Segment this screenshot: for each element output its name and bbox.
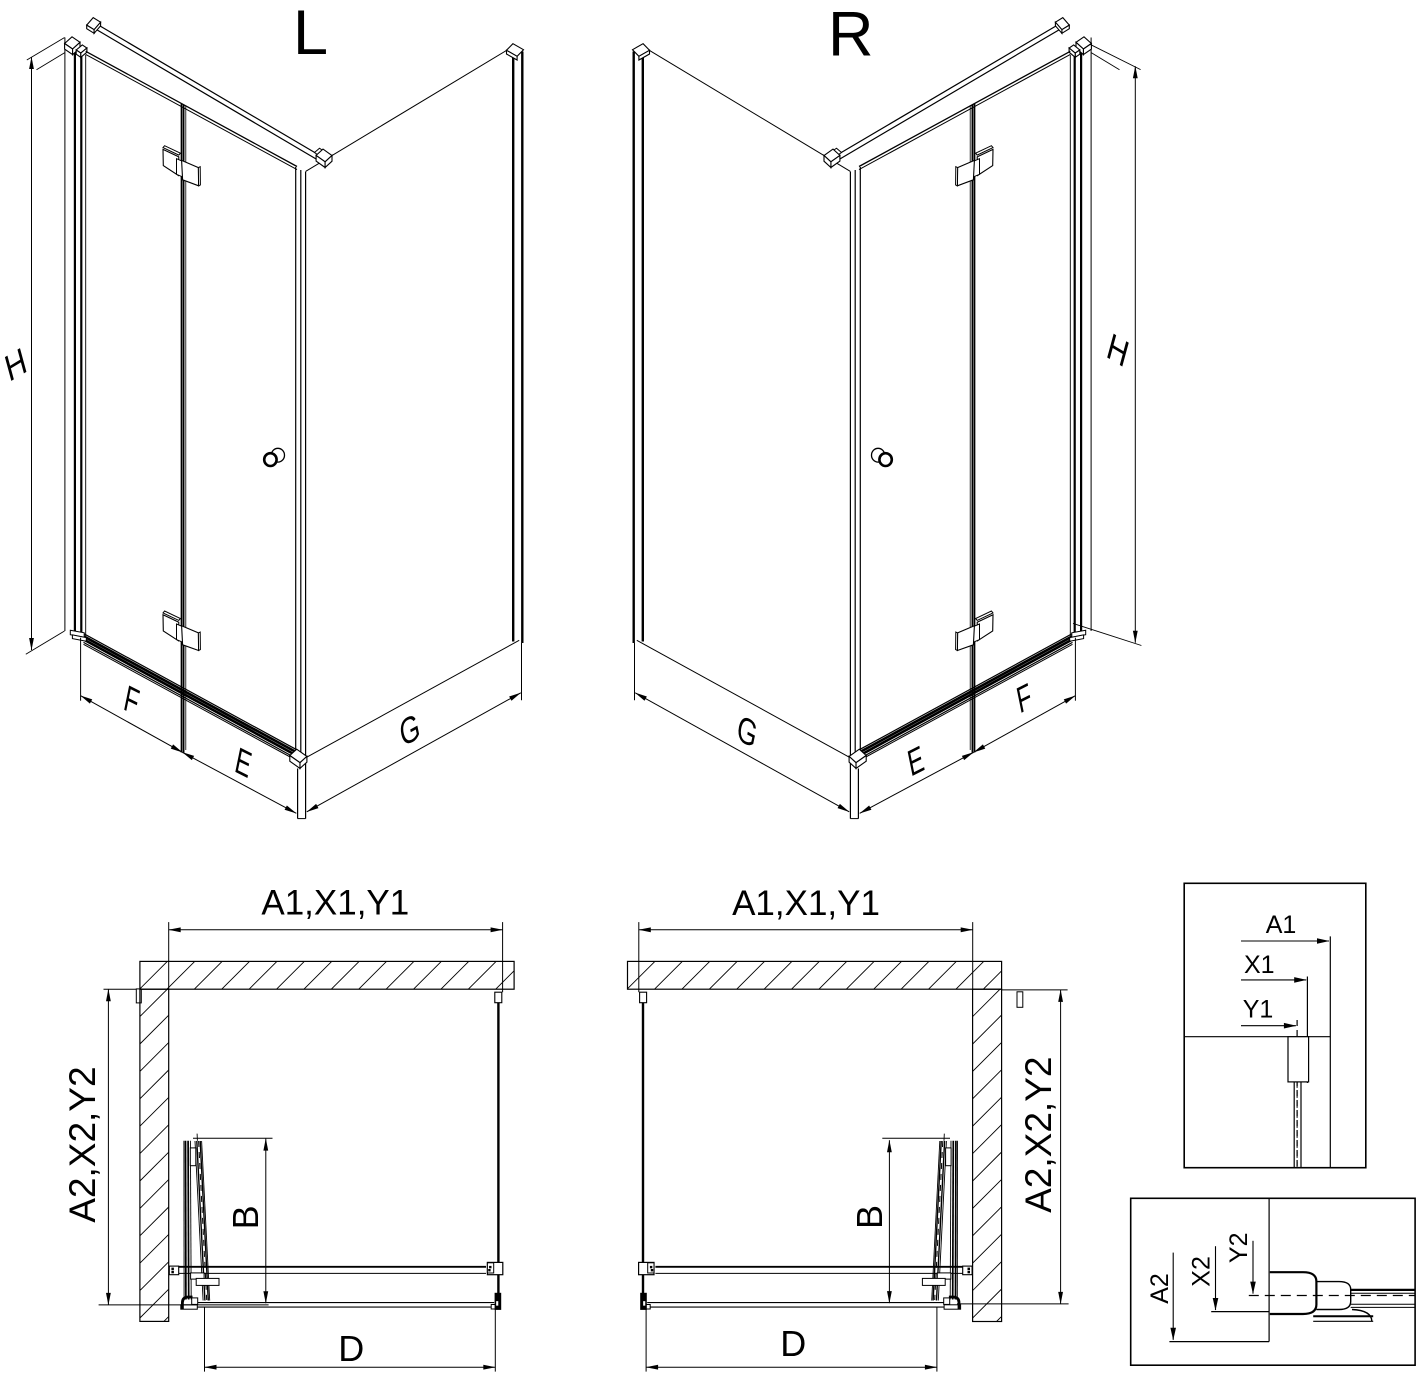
svg-text:A2,X2,Y2: A2,X2,Y2 [1018, 1057, 1059, 1213]
svg-text:A1: A1 [1266, 911, 1297, 939]
svg-text:A2: A2 [1146, 1273, 1174, 1304]
svg-text:A1,X1,Y1: A1,X1,Y1 [261, 883, 409, 922]
svg-text:D: D [338, 1328, 364, 1369]
svg-text:X1: X1 [1244, 951, 1275, 979]
svg-text:B: B [225, 1205, 266, 1229]
svg-text:Y2: Y2 [1225, 1233, 1253, 1264]
svg-text:X2: X2 [1188, 1256, 1216, 1287]
svg-text:L: L [293, 0, 328, 68]
svg-text:B: B [849, 1205, 890, 1229]
svg-text:R: R [828, 0, 874, 69]
svg-text:D: D [780, 1323, 806, 1364]
svg-text:A1,X1,Y1: A1,X1,Y1 [732, 884, 880, 923]
svg-text:A2,X2,Y2: A2,X2,Y2 [62, 1066, 103, 1222]
svg-text:Y1: Y1 [1243, 996, 1274, 1024]
